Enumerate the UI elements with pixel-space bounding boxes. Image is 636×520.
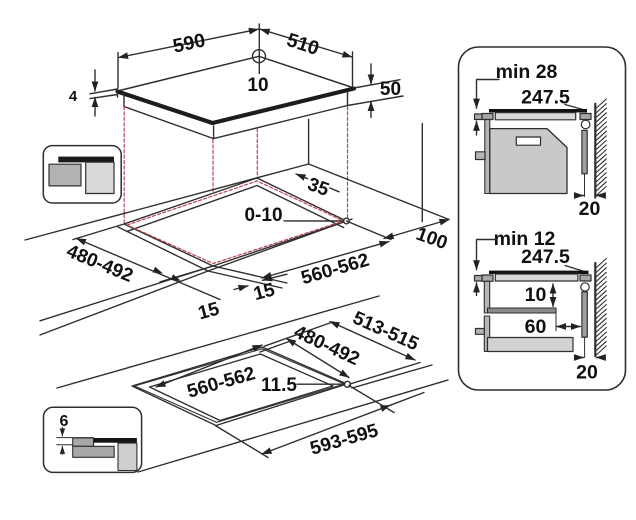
svg-text:15: 15: [251, 279, 277, 305]
svg-text:510: 510: [284, 29, 322, 60]
svg-text:513-515: 513-515: [349, 308, 422, 356]
svg-text:15: 15: [196, 298, 222, 324]
svg-text:0-10: 0-10: [244, 205, 282, 226]
svg-text:20: 20: [576, 362, 598, 384]
svg-text:min 28: min 28: [496, 61, 558, 83]
svg-text:10: 10: [525, 284, 547, 306]
svg-text:10: 10: [247, 75, 268, 96]
svg-text:50: 50: [380, 79, 401, 100]
svg-text:247.5: 247.5: [521, 87, 570, 109]
svg-text:247.5: 247.5: [521, 246, 570, 268]
svg-text:11.5: 11.5: [261, 375, 297, 396]
svg-text:590: 590: [171, 29, 208, 57]
svg-text:20: 20: [579, 198, 601, 220]
svg-text:100: 100: [413, 224, 450, 255]
svg-text:4: 4: [69, 88, 78, 105]
svg-text:35: 35: [305, 174, 332, 201]
svg-text:560-562: 560-562: [299, 250, 372, 289]
svg-text:6: 6: [60, 413, 69, 430]
svg-text:60: 60: [525, 316, 547, 338]
svg-text:593-595: 593-595: [308, 420, 381, 460]
